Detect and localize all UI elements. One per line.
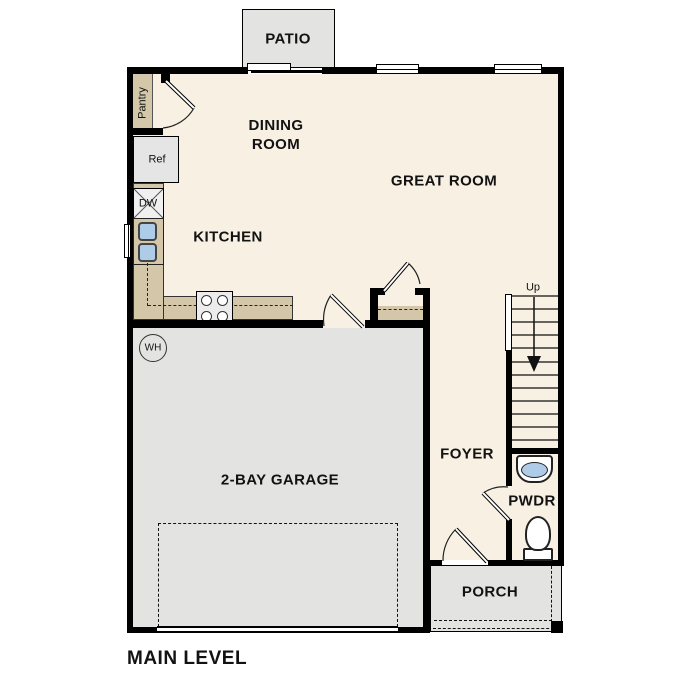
sliding-patio-door-track	[251, 70, 322, 73]
wall-garage-foyer	[423, 288, 430, 633]
window-kitchen	[124, 224, 131, 258]
wall-pwdr-upper	[506, 454, 512, 486]
refrigerator-label: Ref	[148, 151, 165, 170]
dining-room-label: DINING ROOM	[226, 116, 326, 154]
water-heater-label: WH	[145, 339, 162, 358]
great-room-label: GREAT ROOM	[391, 172, 497, 191]
window-pane-line	[377, 69, 418, 70]
counter-dashed-line-vertical	[147, 263, 148, 306]
stair-handrail	[505, 294, 512, 351]
wall-pantry-door-jamb	[161, 67, 170, 83]
patio-label: PATIO	[265, 30, 311, 49]
pantry-label: Pantry	[134, 87, 153, 119]
garage-label: 2-BAY GARAGE	[220, 471, 340, 490]
pwdr-label: PWDR	[508, 492, 555, 511]
window-great-room-2	[494, 64, 542, 74]
porch-dashed-line-right	[551, 566, 552, 622]
toilet-bowl	[525, 516, 551, 551]
burner-icon	[201, 295, 212, 306]
kitchen-sink-bowl-lower	[138, 243, 157, 262]
porch-post	[551, 621, 563, 633]
wall-pwdr-lower	[506, 519, 512, 560]
wall-right	[558, 67, 564, 566]
wall-pantry-bottom	[127, 128, 163, 135]
kitchen-sink-bowl-upper	[138, 222, 157, 241]
plan-title: MAIN LEVEL	[127, 648, 247, 670]
wall-under-stairs	[506, 448, 564, 454]
porch-label: PORCH	[462, 583, 518, 602]
garage-door-setback-dashed	[158, 523, 398, 627]
window-great-room-1	[376, 64, 419, 74]
foyer-label: FOYER	[440, 445, 494, 464]
porch-dashed-line-bottom-1	[434, 620, 552, 621]
window-pane-line	[128, 225, 131, 257]
dishwasher-label: DW	[139, 195, 157, 214]
kitchen-label: KITCHEN	[193, 228, 262, 247]
wall-closet-stub-right	[415, 288, 430, 295]
floor-plan: PATIO DINING ROOM GREAT ROOM KITCHEN 2-B…	[0, 0, 687, 687]
wall-closet-stub-left	[370, 288, 385, 295]
wall-top-left	[127, 67, 248, 74]
pwdr-sink-bowl	[521, 462, 548, 478]
wall-left	[127, 67, 133, 633]
closet-shelf-dashed-line	[378, 309, 423, 310]
wall-stair-side	[506, 350, 512, 454]
wall-kitchen-garage-left	[127, 320, 323, 328]
stairs-up-label: Up	[526, 279, 540, 298]
garage-door	[157, 626, 398, 633]
porch-dashed-line-bottom-2	[433, 628, 559, 629]
burner-icon	[217, 295, 228, 306]
window-pane-line	[495, 69, 541, 70]
wall-garage-bottom-left	[127, 627, 157, 633]
